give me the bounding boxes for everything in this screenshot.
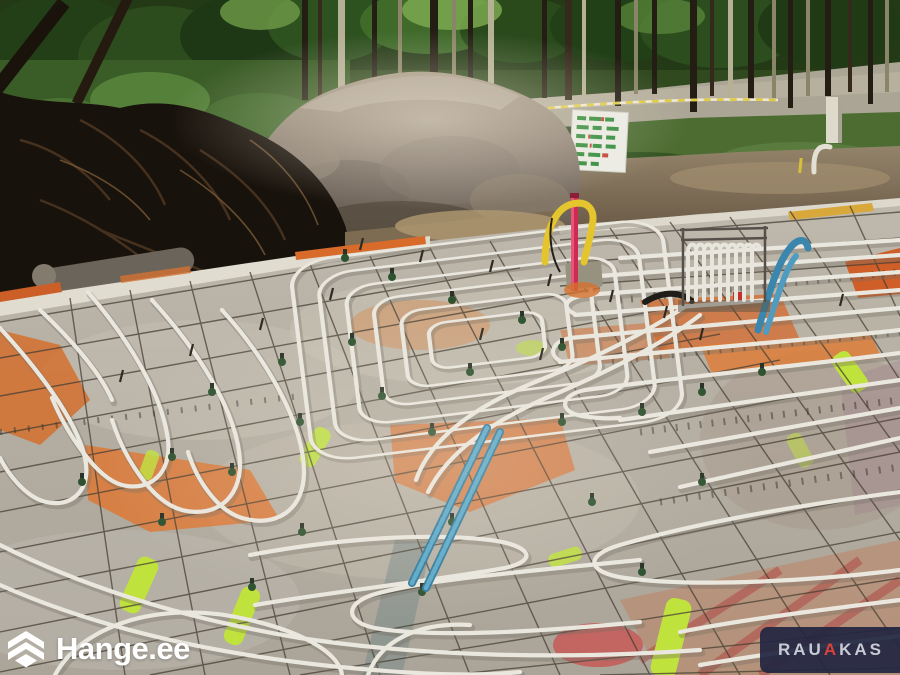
rauakas-watermark: RAUAKAS bbox=[760, 627, 900, 673]
rauakas-text-right: KAS bbox=[839, 640, 884, 660]
hange-cube-icon bbox=[6, 629, 46, 669]
photo-scene bbox=[0, 0, 900, 675]
marker-post bbox=[826, 97, 842, 143]
rauakas-text-accent: A bbox=[824, 640, 839, 660]
construction-photo: Hange.ee RAUAKAS bbox=[0, 0, 900, 675]
sunlight-slab bbox=[100, 300, 760, 620]
hange-logo-text: Hange.ee bbox=[56, 631, 190, 667]
hange-watermark: Hange.ee bbox=[6, 629, 190, 669]
sunlight-overlay bbox=[170, 30, 690, 210]
rauakas-text-left: RAU bbox=[778, 640, 824, 660]
